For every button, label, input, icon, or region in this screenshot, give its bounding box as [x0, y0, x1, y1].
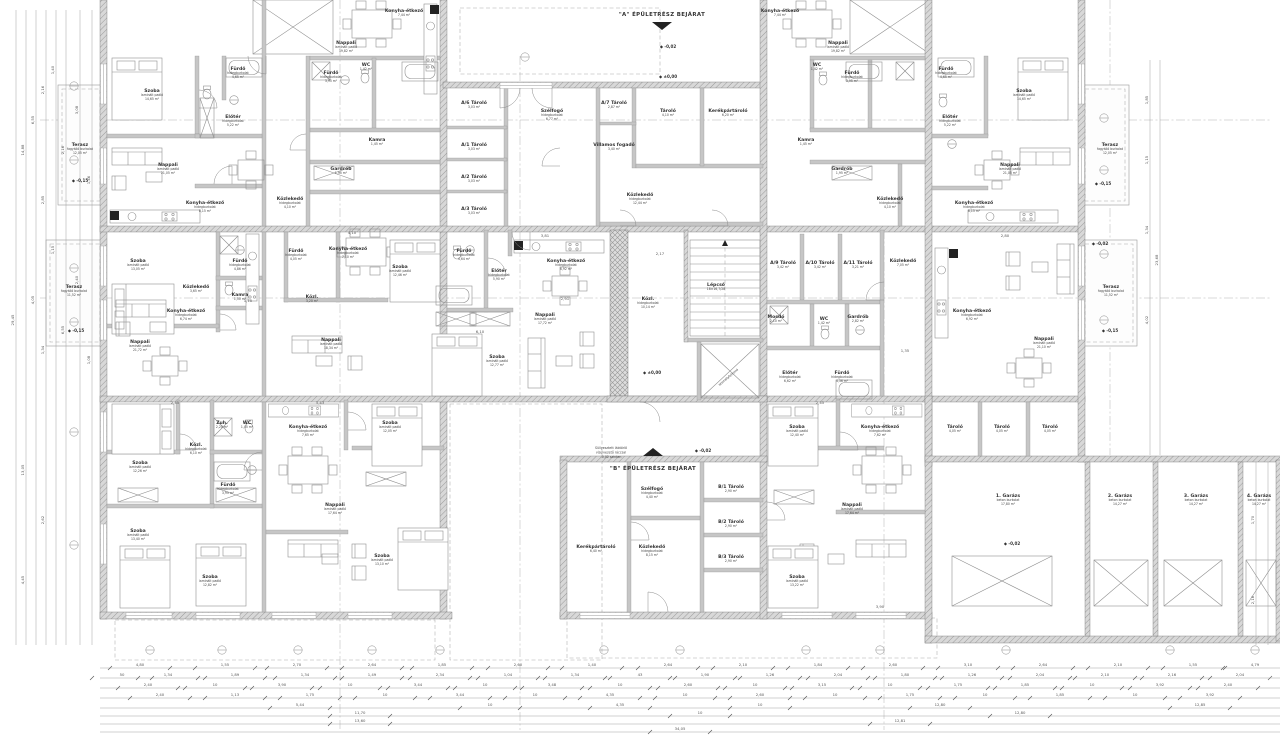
dimension-text: 1,85 [1021, 682, 1030, 687]
room-label: Közlekedőhidegburkolat12,44 m² [627, 192, 654, 205]
room-label: Nappalilaminált padló17,72 m² [534, 312, 556, 325]
court-paving [450, 404, 602, 660]
room-label: Fürdőhidegburkolat3,95 m² [217, 482, 239, 495]
dimension-text: 10 [533, 692, 538, 697]
room-label: Mosdó2,10 m² [768, 313, 785, 323]
dimension-text: 5,43 [316, 400, 325, 405]
dimension-text: 2,40 [156, 692, 165, 697]
level-marker: ◆ -0,02 [1092, 241, 1109, 246]
dimension-text: 1,89 [231, 672, 240, 677]
dimension-text: 2,91 [561, 296, 570, 301]
room-label: A/7 Tároló2,87 m² [601, 99, 627, 109]
entrance-a-arrow [652, 22, 672, 30]
dimension-text: 14,88 [20, 144, 25, 155]
dimension-text: 1,46 [86, 175, 91, 184]
dimension-text: 2,40 [1224, 682, 1233, 687]
room-label: Szobalaminált padló12,26 m² [129, 460, 151, 473]
dimension-text: 1,75 [906, 692, 915, 697]
dimension-text: 4,35 [616, 702, 625, 707]
dimension-text: 2,17 [656, 251, 665, 256]
entry-note: -0,02 szinten [601, 455, 622, 459]
dimension-text: 2,40 [74, 275, 79, 284]
room-label: Nappalilaminált padló21,72 m² [129, 339, 151, 352]
dimension-text: 2,60 [684, 682, 693, 687]
dimension-text: 2,45 [171, 400, 180, 405]
floor-plan-drawing: "A" ÉPÜLETRÉSZ BEJÁRAT"B" ÉPÜLETRÉSZ BEJ… [0, 0, 1280, 736]
room-label: Konyha-étkező7,44 m² [385, 7, 423, 17]
room-label: WC1,45 m² [241, 420, 254, 429]
dimension-text: 2,10 [1101, 672, 1110, 677]
dimension-text: 1,34 [301, 672, 310, 677]
room-label: Tároló4,10 m² [660, 107, 676, 117]
room-label: Kerékpártároló6,40 m² [576, 543, 615, 553]
dimension-text: 1,55 [221, 662, 230, 667]
dimension-text: 1,40 [588, 662, 597, 667]
room-label: WC1,42 m² [360, 62, 373, 71]
room-label: Gardrób1,95 m² [330, 165, 352, 175]
dimension-text: 12,85 [1195, 702, 1206, 707]
room-label: Konyha-étkezőhidegburkolat7,62 m² [861, 423, 899, 437]
dimension-text: 10 [488, 702, 493, 707]
dimension-text: 13,60 [355, 718, 366, 723]
entrance-a-label: "A" ÉPÜLETRÉSZ BEJÁRAT [619, 10, 705, 18]
lift-label: személyfelvonó [718, 368, 740, 387]
dimension-text: 4,10 [348, 230, 357, 235]
entry-note: Süllyesztett lábtörlő [595, 446, 627, 450]
room-label: Tároló4,05 m² [1042, 423, 1058, 433]
room-label: Szobalaminált padló12,77 m² [486, 354, 508, 367]
dimension-text: 6,55 [30, 115, 35, 124]
dimension-text: 1,15 [1144, 155, 1149, 164]
dimension-text: 10 [833, 692, 838, 697]
dimension-text: 2,45 [816, 400, 825, 405]
dimension-text: 2,04 [834, 672, 843, 677]
room-label: Közl.3,20 m² [306, 294, 319, 303]
room-label: Előtérhidegburkolat6,62 m² [779, 369, 801, 383]
dimension-text: 2,10 [1114, 662, 1123, 667]
dimension-text: 4,05 [30, 295, 35, 304]
dimension-text: 29,45 [10, 314, 15, 325]
room-label: Nappalilaminált padló18,34 m² [320, 337, 342, 350]
dimension-text: 1,40 [50, 65, 55, 74]
dimension-text: 1,80 [901, 672, 910, 677]
dimension-text: 10 [213, 682, 218, 687]
doors-layer [180, 56, 884, 612]
room-label: Szobalaminált padló13,40 m² [127, 528, 149, 541]
dimension-text: 2,16 [60, 145, 65, 154]
dimension-text: 3,92 [1206, 692, 1215, 697]
room-label: Fürdőhidegburkolat3,95 m² [320, 70, 342, 83]
dimension-text: 10 [1133, 692, 1138, 697]
room-label: Nappalilaminált padló21,10 m² [1033, 336, 1055, 349]
room-label: Közl.hidegburkolat6,10 m² [185, 442, 207, 455]
room-label: Fürdőhidegburkolat4,05 m² [285, 248, 307, 261]
dimension-text: 3,81 [541, 233, 550, 238]
room-label: Kamra1,45 m² [369, 137, 386, 146]
room-label: Fürdőhidegburkolat4,36 m² [831, 370, 853, 383]
dimension-text: 23,68 [1154, 254, 1159, 265]
dimension-text: 2,64 [664, 662, 673, 667]
garage-label: 1. Garázsbeton burkolat17,80 m² [996, 492, 1020, 506]
dimension-text: 2,62 [40, 515, 45, 524]
dimension-text: 10 [983, 692, 988, 697]
dimension-text: 2,60 [889, 662, 898, 667]
dimension-text: 2,04 [1036, 672, 1045, 677]
dimension-text: 43 [638, 672, 643, 677]
floor-plan-page: "A" ÉPÜLETRÉSZ BEJÁRAT"B" ÉPÜLETRÉSZ BEJ… [0, 0, 1280, 736]
dimension-text: 1,04 [504, 672, 513, 677]
room-label: Zuh.2,20 m² [216, 420, 229, 429]
room-label: Konyha-étkezőhidegburkolat6,92 m² [953, 307, 991, 321]
room-label: Előtérhidegburkolat5,22 m² [939, 113, 961, 127]
room-label: A/1 Tároló3,03 m² [461, 141, 487, 151]
room-label: Közlekedő7,05 m² [890, 258, 917, 267]
dimension-text: 50 [120, 672, 125, 677]
room-label: WC1,42 m² [811, 62, 824, 71]
level-marker: ◆ -0,15 [1095, 181, 1112, 186]
dimension-text: 1,85 [438, 662, 447, 667]
room-label: Előtérhidegburkolat5,90 m² [488, 267, 510, 281]
dimension-text: 1,34 [571, 672, 580, 677]
garage-label: 2. Garázsbeton burkolat14,27 m² [1108, 492, 1132, 506]
dimension-text: 2,60 [514, 662, 523, 667]
dimension-text: 12,81 [895, 718, 906, 723]
room-label: B/2 Tároló2,90 m² [718, 518, 744, 528]
room-label: Tároló4,05 m² [994, 423, 1010, 433]
room-label: Tároló4,05 m² [947, 423, 963, 433]
room-label: A/10 Tároló3,42 m² [805, 259, 834, 269]
dimension-text: 10 [758, 702, 763, 707]
level-marker: ◆ -0,15 [68, 328, 85, 333]
dimension-tick [90, 676, 94, 680]
dimension-text: 3,92 [1156, 682, 1165, 687]
dimension-text: 1,85 [1056, 692, 1065, 697]
dimension-text: 1,90 [701, 672, 710, 677]
room-label: Szélfogóhidegburkolat6,77 m² [541, 107, 564, 121]
dimension-text: 4,79 [1251, 662, 1260, 667]
dimension-text: 1,15 [50, 245, 55, 254]
dimension-text: 2,80 [1001, 233, 1010, 238]
dimension-text: 1,08 [86, 355, 91, 364]
dimension-text: 4,45 [20, 575, 25, 584]
dimension-text: 3,44 [414, 682, 423, 687]
dimension-text: 34,05 [675, 726, 686, 731]
dimension-text: 3,15 [818, 682, 827, 687]
dimension-text: 4,02 [1144, 315, 1149, 324]
dimension-text: 2,85 [40, 195, 45, 204]
room-label: Gardrób2,82 m² [847, 313, 869, 323]
dimension-text: 6,55 [60, 325, 65, 334]
dimension-text: 6,10 [476, 329, 485, 334]
dimension-text: 2,64 [368, 662, 377, 667]
dimension-text: 10 [483, 682, 488, 687]
dimension-text: 3,90 [876, 604, 885, 609]
dimension-text: 5,44 [296, 702, 305, 707]
dimension-text: 10 [888, 682, 893, 687]
room-label: Nappalilaminált padló19,82 m² [335, 40, 357, 53]
dimension-text: 2,16 [1250, 595, 1255, 604]
dimension-text: 1,84 [814, 662, 823, 667]
dimension-text: 10 [683, 692, 688, 697]
entry-note: vízelvezető ráccsal [596, 450, 626, 454]
dimension-text: 1,34 [164, 672, 173, 677]
dimension-text: 10 [383, 692, 388, 697]
level-marker: ◆ -0,02 [695, 448, 712, 453]
dimension-text: 1,75 [954, 682, 963, 687]
dimension-text: 2,64 [1039, 662, 1048, 667]
room-label: Nappalilaminált padló21,05 m² [157, 162, 179, 175]
room-label: A/6 Tároló3,03 m² [461, 99, 487, 109]
dimension-text: 3,90 [278, 682, 287, 687]
entrance-b-paving [567, 618, 937, 658]
dimension-text: 1,85 [1144, 95, 1149, 104]
dimension-text: 2,40 [144, 682, 153, 687]
room-label: Szobalaminált padló13,05 m² [127, 258, 149, 271]
dimension-text: 1,35 [901, 348, 910, 353]
level-marker: ◆ ±0,00 [659, 74, 677, 79]
entrance-b-label: "B" ÉPÜLETRÉSZ BEJÁRAT [610, 464, 696, 472]
room-label: A/2 Tároló3,03 m² [461, 173, 487, 183]
dimension-text: 1,55 [1189, 662, 1198, 667]
level-marker: ◆ -0,15 [1102, 328, 1119, 333]
dimension-text: 2,16 [40, 85, 45, 94]
room-label: Kerékpártároló6,20 m² [708, 107, 747, 117]
garage-doors [952, 556, 1276, 606]
room-label: B/1 Tároló2,90 m² [718, 483, 744, 493]
dimension-text: 10 [698, 710, 703, 715]
dimension-text: 2,34 [436, 672, 445, 677]
room-label: Konyha-étkezőhidegburkolat7,10 m² [329, 245, 367, 259]
dimension-text: 1,26 [968, 672, 977, 677]
dimension-text: 3,48 [548, 682, 557, 687]
room-label: Közlekedőhidegburkolat8,15 m² [639, 544, 666, 557]
stair-direction-arrow [722, 240, 728, 246]
dimension-text: 1,13 [231, 692, 240, 697]
dimension-text: 10 [618, 682, 623, 687]
room-label: WC1,42 m² [818, 316, 831, 325]
room-label: A/3 Tároló3,03 m² [461, 205, 487, 215]
dimension-text: 1,75 [244, 298, 253, 303]
room-label: Nappalilaminált padló19,82 m² [827, 40, 849, 53]
dimension-text: 1,34 [1144, 225, 1149, 234]
dimension-text: 1,75 [306, 692, 315, 697]
level-marker: ◆ ±0,00 [643, 370, 661, 375]
dimension-text: 3,44 [456, 692, 465, 697]
room-label: Szélfogóhidegburkolat4,40 m² [641, 485, 664, 499]
dimension-text: 1,70 [1250, 515, 1255, 524]
garage-label: 3. Garázsbeton burkolat14,27 m² [1184, 492, 1208, 506]
room-label: B/3 Tároló2,90 m² [718, 553, 744, 563]
dimension-text: 13,05 [20, 464, 25, 475]
level-marker: ◆ -0,02 [1004, 541, 1021, 546]
dimension-text: 4,35 [606, 692, 615, 697]
dimension-text: 1,34 [40, 345, 45, 354]
room-label: A/11 Tároló3,21 m² [843, 259, 872, 269]
room-label: Nappalilaminált padló21,05 m² [999, 162, 1021, 175]
room-label: Konyha-étkezőhidegburkolat7,65 m² [289, 423, 327, 437]
dimension-text: 2,10 [739, 662, 748, 667]
room-label: Szobalaminált padló13,10 m² [371, 553, 393, 566]
room-label: Közlekedő3,65 m² [183, 284, 210, 293]
dimension-text: 1,49 [368, 672, 377, 677]
dimension-text: 10 [753, 682, 758, 687]
room-label: Előtérhidegburkolat5,22 m² [222, 113, 244, 127]
room-label: Konyha-étkezőhidegburkolat6,92 m² [547, 257, 585, 271]
dimension-text: 4,80 [136, 662, 145, 667]
dimension-text: 2,16 [1168, 672, 1177, 677]
room-label: Közlekedőhidegburkolat4,10 m² [277, 196, 304, 209]
garage-label: 4. Garázsbeton burkolat14,27 m² [1247, 492, 1271, 506]
dimension-text: 1,26 [766, 672, 775, 677]
dimension-text: 3,08 [74, 105, 79, 114]
room-label: Kamra1,45 m² [798, 137, 815, 146]
dimension-text: 2,04 [1236, 672, 1245, 677]
dimension-text: 11,70 [355, 710, 366, 715]
entrance-b-arrow [643, 448, 663, 456]
dimension-text: 3,10 [964, 662, 973, 667]
dimension-text: 10 [1090, 682, 1095, 687]
room-label: Lépcső18×16,7/28 [707, 281, 725, 291]
room-label: Nappalilaminált padló17,64 m² [324, 502, 346, 515]
dimension-text: 2,70 [293, 662, 302, 667]
dimension-text: 12,80 [1015, 710, 1026, 715]
dimension-text: 10 [348, 682, 353, 687]
dimension-text: 12,80 [935, 702, 946, 707]
level-marker: ◆ -0,02 [660, 44, 677, 49]
room-label: A/9 Tároló3,42 m² [770, 259, 796, 269]
dimension-text: 2,60 [756, 692, 765, 697]
